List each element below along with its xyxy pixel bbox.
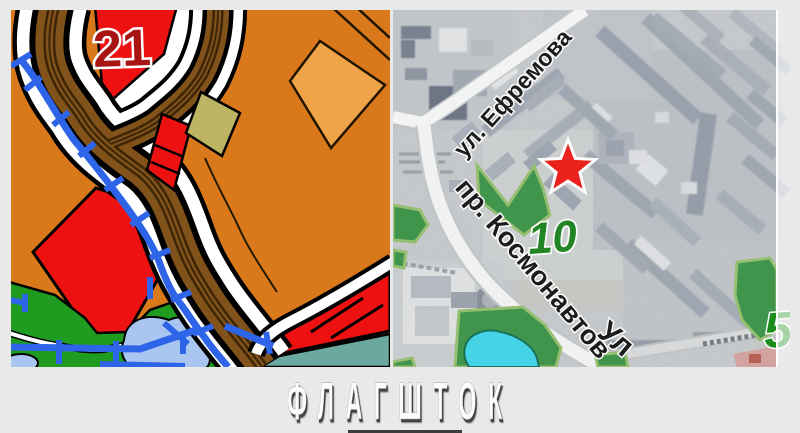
svg-text:21: 21 (92, 19, 152, 79)
